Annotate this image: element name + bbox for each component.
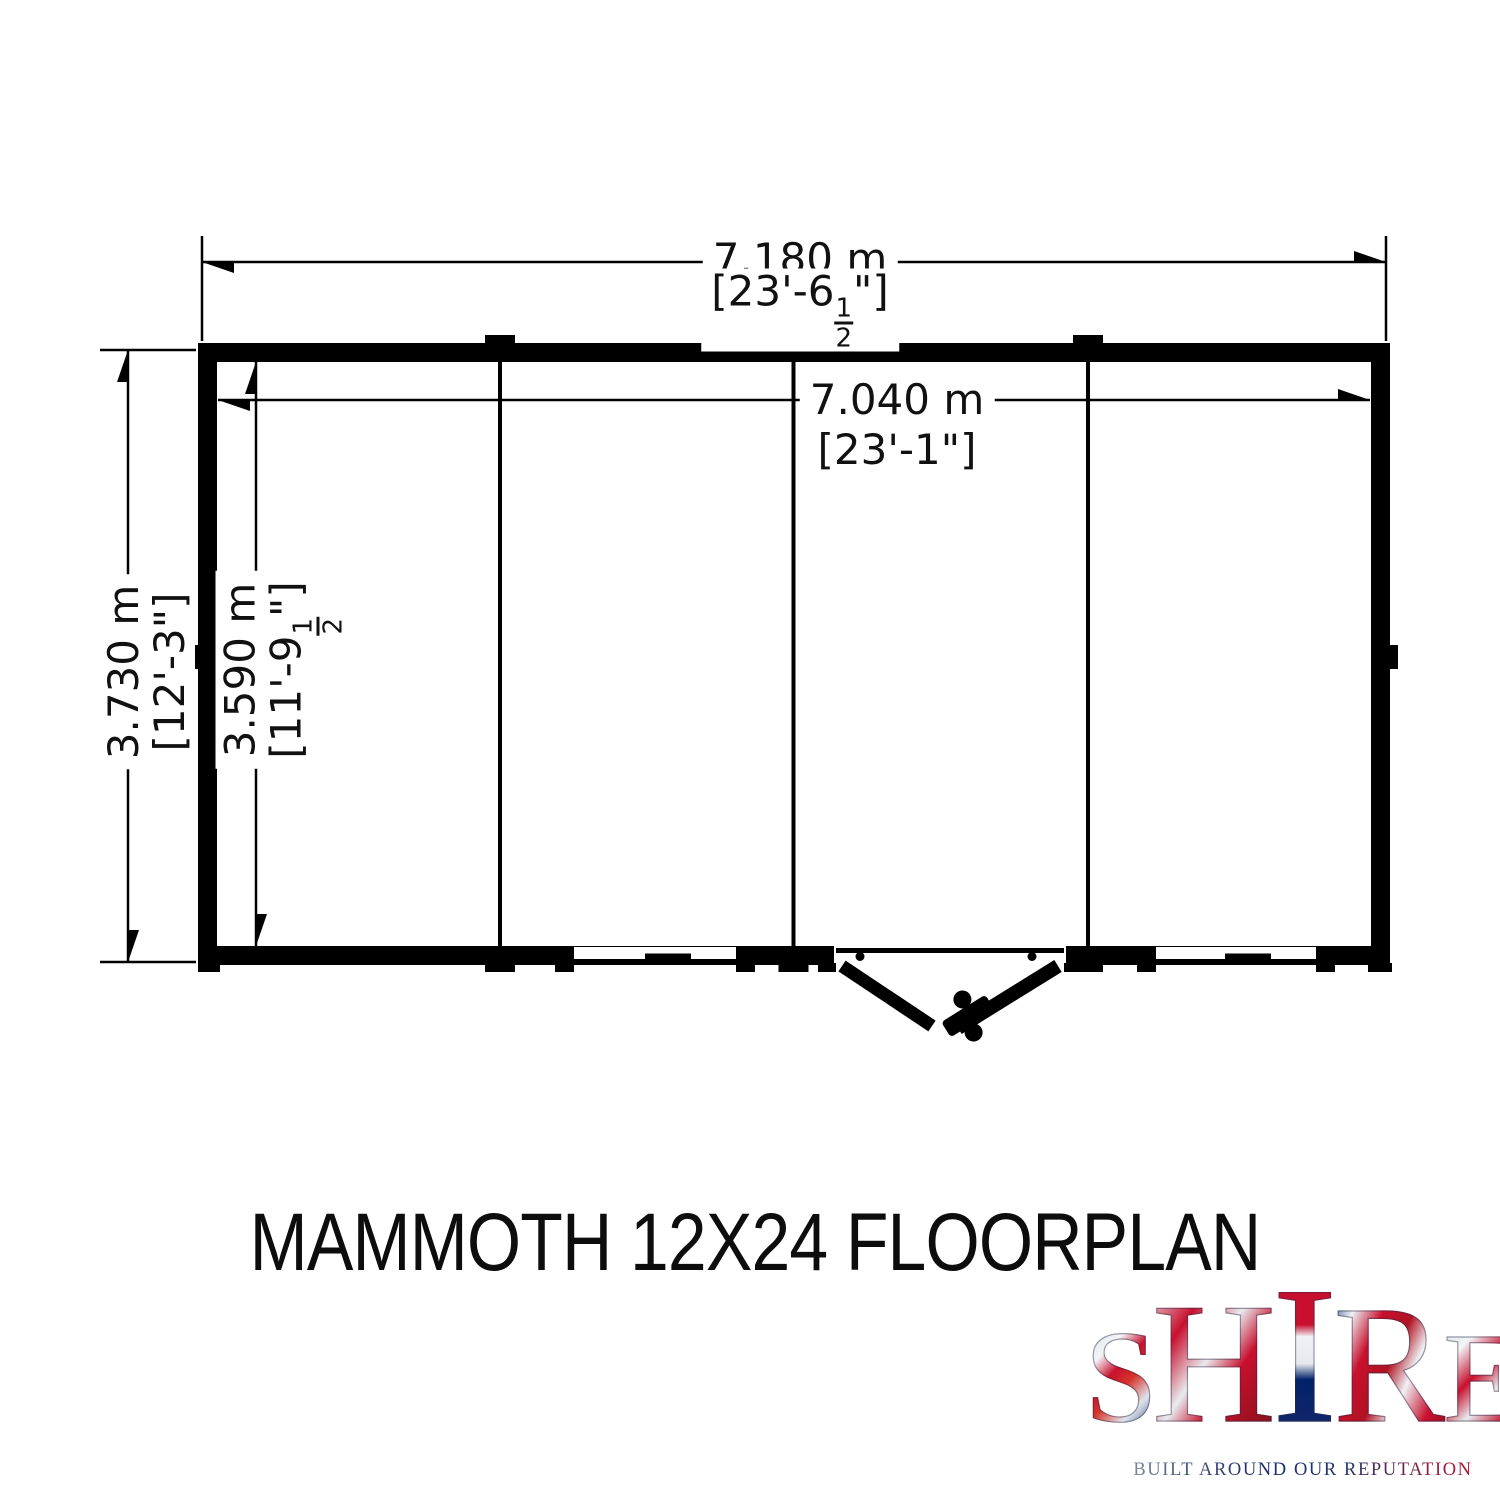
inner-width-metric-label: 7.040 m	[800, 377, 995, 423]
door-jamb	[1064, 963, 1082, 972]
shire-logo-wordmark: S H I R E	[1120, 1258, 1486, 1454]
wall-joint-tick	[779, 963, 809, 972]
double-door	[818, 945, 1082, 1052]
inner-width-imperial-label: [23'-1"]	[808, 427, 987, 473]
wall-corner-tick	[198, 963, 220, 972]
floorplan-page: 7.180 m [23'-612"] 7.040 m [23'-1"] 3.73…	[0, 0, 1500, 1500]
metric-text: 3.590 m	[218, 581, 264, 759]
fraction: 12	[835, 296, 854, 352]
logo-letter: H	[1152, 1278, 1276, 1450]
door-leaf-left	[842, 966, 932, 1026]
wall-corner-tick	[1368, 963, 1392, 972]
page-title: MAMMOTH 12X24 FLOORPLAN	[250, 1196, 1261, 1290]
door-hinge-dot	[856, 952, 865, 961]
door-head-line	[836, 948, 1064, 953]
logo-letter: S	[1084, 1311, 1157, 1443]
arrowhead	[1354, 251, 1386, 262]
side-wall-tick	[1389, 645, 1398, 669]
shire-logo: S H I R E BUILT AROUND OUR REPUTATION	[1120, 1258, 1486, 1481]
window-mullion	[645, 954, 691, 961]
logo-tagline: BUILT AROUND OUR REPUTATION	[1120, 1460, 1486, 1481]
arrowhead	[117, 350, 128, 382]
arrowhead	[202, 262, 234, 273]
wall-joint-tick	[485, 963, 515, 972]
outer-width-imperial-label: [23'-612"]	[701, 269, 899, 352]
logo-letter: E	[1443, 1314, 1500, 1442]
door-jamb	[818, 963, 836, 972]
door-hinge-dot	[1028, 952, 1037, 961]
wall-joint-tick	[485, 335, 515, 344]
outer-depth-label: 3.730 m [12'-3"]	[99, 575, 195, 770]
building-walls	[190, 335, 1398, 972]
arrowhead	[128, 930, 139, 962]
window-mullion	[1225, 954, 1271, 961]
imperial-text: [11'-912"]	[264, 581, 347, 759]
logo-letter: R	[1333, 1281, 1445, 1449]
imperial-text: [12'-3"]	[147, 585, 193, 760]
metric-text: 3.730 m	[101, 585, 147, 760]
imperial-text: "]	[853, 267, 889, 316]
wall-joint-tick	[1073, 335, 1103, 344]
inner-depth-label: 3.590 m [11'-912"]	[216, 571, 349, 769]
fraction: 12	[291, 617, 347, 636]
logo-letter: I	[1272, 1258, 1337, 1454]
imperial-text: [23'-6	[711, 267, 834, 316]
door-lock	[932, 980, 1004, 1052]
